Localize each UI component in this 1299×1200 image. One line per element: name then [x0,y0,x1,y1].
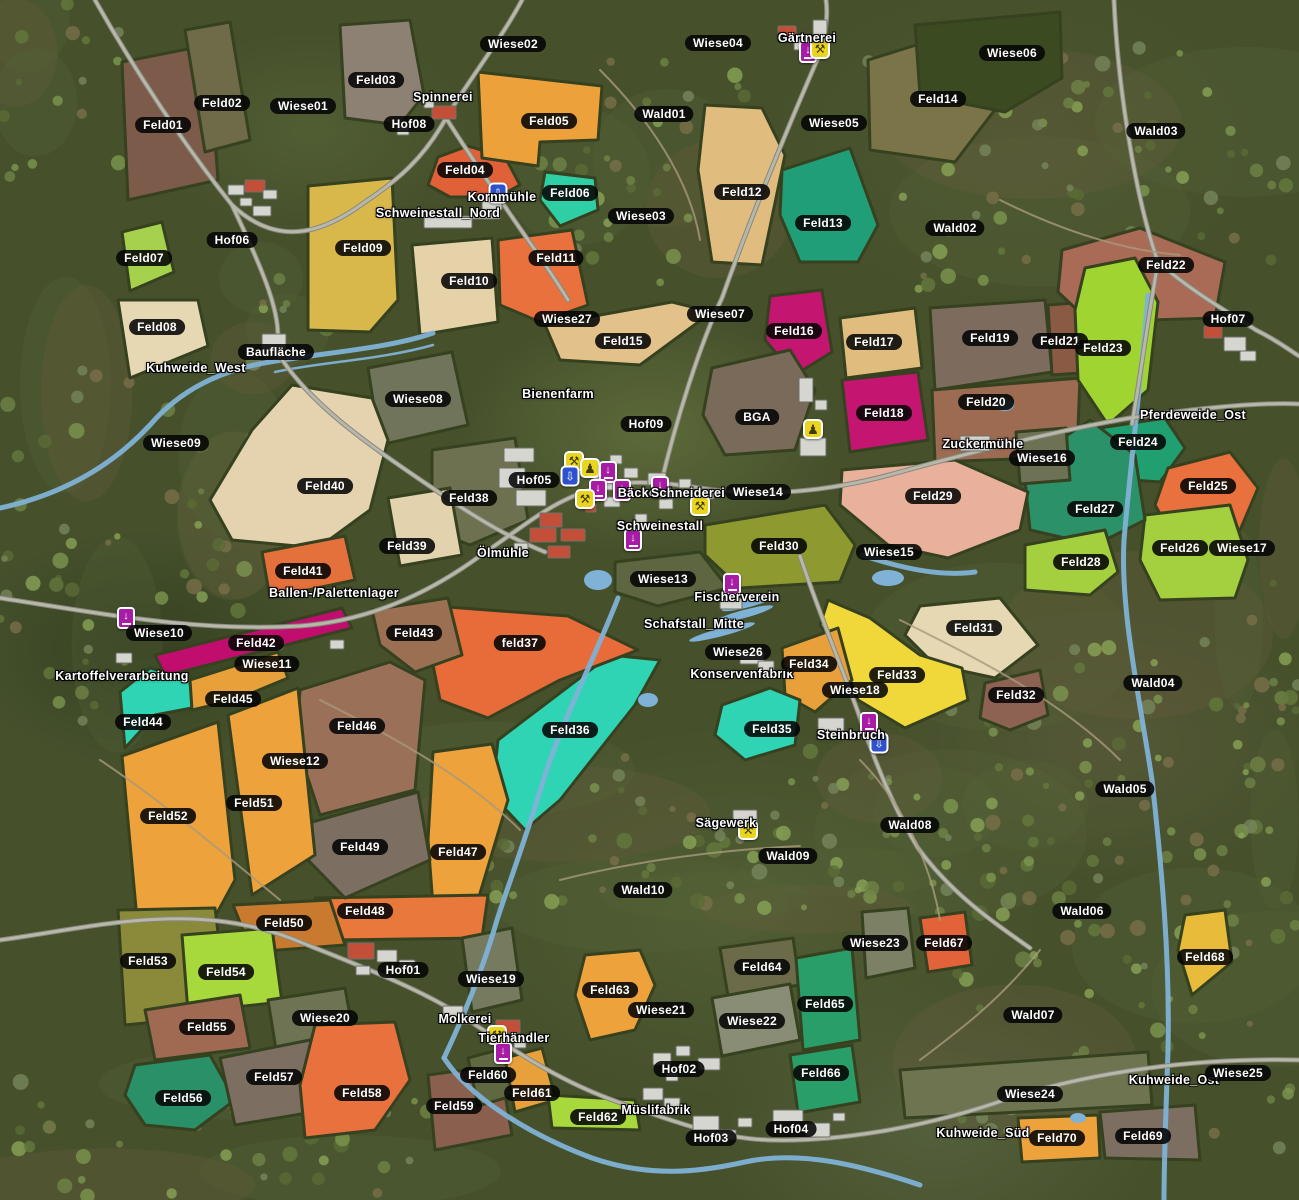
map-label-feld59: Feld59 [426,1098,482,1114]
map-label-feld14: Feld14 [910,91,966,107]
building [240,198,252,206]
map-label-feld17: Feld17 [846,334,902,350]
map-label-feld66: Feld66 [793,1065,849,1081]
field-shape-feld51[interactable] [228,688,315,895]
map-label-wald10: Wald10 [613,882,672,898]
map-label-hof09: Hof09 [621,416,672,432]
building [815,400,827,410]
map-label-wiese19: Wiese19 [458,971,524,987]
map-label-wald07: Wald07 [1003,1007,1062,1023]
map-label-feld38: Feld38 [441,490,497,506]
building [1240,351,1256,361]
map-label-feld48: Feld48 [337,903,393,919]
map-label-feld06: Feld06 [542,185,598,201]
map-label-feld34: Feld34 [781,656,837,672]
shop-icon[interactable]: ♟ [803,419,823,439]
map-label-feld31: Feld31 [946,620,1002,636]
map-label-wiese14: Wiese14 [725,484,791,500]
map-label-feld68: Feld68 [1177,949,1233,965]
map-label-fischerverein: Fischerverein [694,590,779,604]
map-label-feld56: Feld56 [155,1090,211,1106]
building [738,1118,752,1127]
map-label-feld08: Feld08 [129,319,185,335]
map-label-feld49: Feld49 [332,839,388,855]
map-label-wiese24: Wiese24 [997,1086,1063,1102]
map-label-feld44: Feld44 [115,714,171,730]
map-label-wiese07: Wiese07 [687,306,753,322]
map-label-kuhweide-west: Kuhweide_West [146,361,246,375]
map-label-feld39: Feld39 [379,538,435,554]
map-label-feld54: Feld54 [198,964,254,980]
map-label-wiese11: Wiese11 [234,656,299,672]
map-label-wald04: Wald04 [1123,675,1182,691]
field-shape-feld58[interactable] [300,1022,410,1138]
map-label-feld57: Feld57 [246,1069,302,1085]
map-label-feld18: Feld18 [856,405,912,421]
map-label-hof03: Hof03 [686,1130,737,1146]
building [263,190,277,199]
building [540,513,562,527]
map-label-wald08: Wald08 [880,817,939,833]
building [530,528,556,542]
building [504,448,534,462]
map-label-kuhweide-s-d: Kuhweide_Süd [936,1126,1029,1140]
building [624,468,638,478]
building [245,180,265,192]
map-label-feld60: Feld60 [460,1067,516,1083]
shop-icon[interactable]: ♟ [580,458,600,478]
map-label-feld27: Feld27 [1067,501,1123,517]
map-label-feld41: Feld41 [275,563,331,579]
map-label-zuckerm-hle: Zuckermühle [942,437,1023,451]
map-label-feld12: Feld12 [714,184,770,200]
field-shape-feld52[interactable] [122,722,235,935]
building [1224,337,1246,351]
map-label-feld55: Feld55 [179,1019,235,1035]
map-label-wiese16: Wiese16 [1009,450,1075,466]
map-label-g-rtnerei: Gärtnerei [778,31,836,45]
pond [638,693,658,707]
map-label-wiese20: Wiese20 [292,1010,358,1026]
map-label-pferdeweide-ost: Pferdeweide_Ost [1140,408,1246,422]
map-label-feld51: Feld51 [226,795,282,811]
map-label-konservenfabrik: Konservenfabrik [690,667,793,681]
map-label-ballen-palettenlager: Ballen-/Palettenlager [269,586,399,600]
building [799,378,813,402]
map-label-wiese01: Wiese01 [270,98,336,114]
map-label-feld22: Feld22 [1138,257,1194,273]
map-label-feld04: Feld04 [437,162,493,178]
map-label-wald01: Wald01 [634,106,693,122]
building [377,950,397,962]
map-label-feld25: Feld25 [1180,478,1236,494]
map-label-wiese12: Wiese12 [262,753,328,769]
map-label-wiese13: Wiese13 [630,571,696,587]
building [833,1113,845,1121]
map-label-bienenfarm: Bienenfarm [522,387,594,401]
storage-icon[interactable]: ⇩ [561,466,580,487]
map-label-feld20: Feld20 [958,394,1014,410]
building [676,1046,690,1056]
map-label-feld62: Feld62 [570,1109,626,1125]
map-label-hof04: Hof04 [766,1121,817,1137]
map-label-feld28: Feld28 [1053,554,1109,570]
map-label-schweinestall: Schweinestall [617,519,704,533]
map-label-feld53: Feld53 [120,953,176,969]
map-label-wiese05: Wiese05 [801,115,867,131]
map-label-feld37: feld37 [494,635,546,651]
map-label-wald06: Wald06 [1052,903,1111,919]
map-label-schweinestall-nord: Schweinestall_Nord [376,206,500,220]
map-label-feld30: Feld30 [751,538,807,554]
production-icon[interactable]: ⚒ [575,489,595,509]
map-label-hof05: Hof05 [509,472,560,488]
map-label-feld61: Feld61 [504,1085,560,1101]
building [800,438,826,456]
building [116,653,132,663]
map-label-feld16: Feld16 [766,323,822,339]
map-label-wiese10: Wiese10 [126,625,192,641]
building [561,529,585,541]
map-label--lm-hle: Ölmühle [477,546,529,560]
map-label-wiese23: Wiese23 [842,935,908,951]
map-label-schafstall-mitte: Schafstall_Mitte [644,617,744,631]
building [432,106,456,119]
map-label-feld42: Feld42 [228,635,284,651]
map-label-feld29: Feld29 [905,488,961,504]
map-label-baufl-che: Baufläche [238,344,314,360]
building [516,490,546,506]
map-label-wiese27: Wiese27 [534,311,600,327]
map-label-feld03: Feld03 [348,72,404,88]
map-label-spinnerei: Spinnerei [413,90,473,104]
sell-point-icon[interactable]: ↓ [494,1042,512,1064]
map-label-wiese08: Wiese08 [385,391,451,407]
pond [584,570,612,590]
map-label-feld33: Feld33 [869,667,925,683]
map-label-wiese26: Wiese26 [705,644,771,660]
building [1204,326,1222,338]
map-label-feld47: Feld47 [430,844,486,860]
map-label-wiese17: Wiese17 [1209,540,1275,556]
map-label-feld24: Feld24 [1110,434,1166,450]
map-label-hof08: Hof08 [384,116,435,132]
map-label-feld32: Feld32 [988,687,1044,703]
map-label-bga: BGA [735,409,779,425]
field-shape-feld11[interactable] [498,230,588,322]
pond [872,570,904,586]
map-label-hof06: Hof06 [207,232,258,248]
map-label-feld19: Feld19 [962,330,1018,346]
building [228,185,244,195]
building [659,499,673,509]
map-label-feld35: Feld35 [744,721,800,737]
map-label-feld01: Feld01 [135,117,191,133]
field-shape-bga-area[interactable] [703,350,815,455]
map-label-kartoffelverarbeitung: Kartoffelverarbeitung [55,669,188,683]
map-label-feld63: Feld63 [582,982,638,998]
map-label-feld05: Feld05 [521,113,577,129]
map-label-feld46: Feld46 [329,718,385,734]
map-label-feld40: Feld40 [297,478,353,494]
map-label-feld45: Feld45 [205,691,261,707]
map-label-feld13: Feld13 [795,215,851,231]
map-label-molkerei: Molkerei [438,1012,491,1026]
map-label-feld67: Feld67 [916,935,972,951]
map-label-steinbruch: Steinbruch [817,728,885,742]
map-label-feld36: Feld36 [542,722,598,738]
map-label-wiese04: Wiese04 [685,35,751,51]
map-label-feld65: Feld65 [797,996,853,1012]
map-label-wiese15: Wiese15 [856,544,922,560]
building [693,1116,719,1130]
building [330,640,344,649]
map-label-wiese18: Wiese18 [822,682,888,698]
map-label-kornm-hle: Kornmühle [468,190,537,204]
pond [1070,1113,1086,1123]
map-label-wald03: Wald03 [1126,123,1185,139]
building [643,1088,663,1100]
map-label-hof02: Hof02 [654,1061,705,1077]
map-label-feld23: Feld23 [1075,340,1131,356]
map-label-feld07: Feld07 [116,250,172,266]
map-label-wiese21: Wiese21 [628,1002,694,1018]
map-label-feld70: Feld70 [1029,1130,1085,1146]
map-label-feld50: Feld50 [256,915,312,931]
map-label-feld58: Feld58 [334,1085,390,1101]
map-label-hof01: Hof01 [378,962,429,978]
map-label-hof07: Hof07 [1203,311,1254,327]
map-label-wiese03: Wiese03 [608,208,674,224]
map-label-wiese22: Wiese22 [719,1013,785,1029]
map-label-feld52: Feld52 [140,808,196,824]
map-label-wiese09: Wiese09 [143,435,209,451]
map-label-wiese06: Wiese06 [979,45,1045,61]
map-label-wald02: Wald02 [925,220,984,236]
map-label-schneiderei: Schneiderei [651,486,725,500]
map-label-feld09: Feld09 [335,240,391,256]
map-label-feld15: Feld15 [595,333,651,349]
map-label-feld64: Feld64 [734,959,790,975]
field-shape-feld46[interactable] [296,662,425,815]
building [356,966,370,975]
map-label-feld26: Feld26 [1152,540,1208,556]
building [348,943,374,959]
map-label-wald09: Wald09 [758,848,817,864]
building [548,546,570,558]
map-label-feld02: Feld02 [194,95,250,111]
map-label-m-slifabrik: Müslifabrik [621,1103,690,1117]
building [253,206,271,216]
map-label-tierh-ndler: Tierhändler [478,1031,549,1045]
map-label-feld69: Feld69 [1115,1128,1171,1144]
map-label-s-gewerk: Sägewerk [696,816,757,830]
game-map: ↓⚒⇩⚒♟⇩↓↓↓↓⚒⚒↓♟↓↓↓⇩⚒⚒↓Feld01Feld02Wiese01… [0,0,1299,1200]
map-label-feld10: Feld10 [441,273,497,289]
map-label-wald05: Wald05 [1095,781,1154,797]
map-label-feld11: Feld11 [528,250,583,266]
field-shape-feld13[interactable] [780,148,878,262]
map-label-wiese25: Wiese25 [1205,1065,1271,1081]
map-label-feld43: Feld43 [386,625,442,641]
map-label-wiese02: Wiese02 [480,36,546,52]
